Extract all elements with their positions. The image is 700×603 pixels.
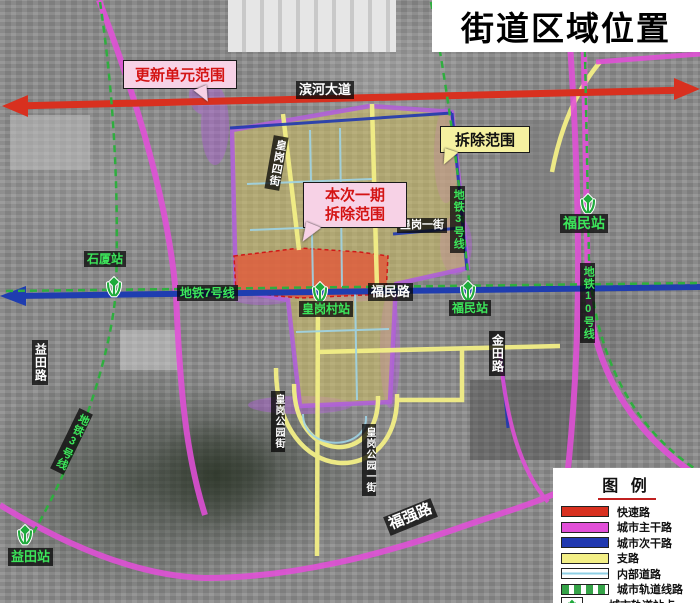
station-label-yitian: 益田站: [8, 548, 53, 566]
road-label-yitian-road: 益田路: [32, 340, 48, 385]
page-title-bar: 街道区域位置: [432, 0, 700, 52]
legend-swatch-rail-station: [561, 597, 583, 603]
station-label-huanggangcun: 皇岗村站: [299, 301, 353, 317]
callout-phase1-line1: 本次一期: [325, 186, 385, 206]
metro-label-line7: 地铁7号线: [177, 285, 238, 301]
metro-logo-icon: [577, 193, 599, 215]
station-label-fumin-northeast: 福民站: [560, 214, 608, 233]
road-label-huanggang-park-street: 皇岗公园街: [271, 391, 285, 452]
metro-logo-icon: [103, 276, 125, 298]
legend-title: 图 例: [598, 472, 656, 500]
road-label-binhe-avenue: 滨河大道: [296, 81, 354, 99]
legend-row: 城市轨道站点: [553, 597, 700, 603]
metro-logo-icon: [566, 599, 578, 603]
callout-phase1-line2: 拆除范围: [325, 205, 385, 225]
metro-label-line10: 地铁10号线: [580, 263, 595, 343]
legend-swatch-expressway: [561, 506, 609, 517]
legend-swatch-branch: [561, 553, 609, 564]
legend-row: 支路: [553, 551, 700, 567]
metro-label-line3-north: 地铁3号线: [450, 186, 465, 253]
legend-swatch-arterial: [561, 522, 609, 533]
metro-logo-icon: [309, 281, 331, 303]
legend-label: 内部道路: [617, 566, 661, 582]
legend-label: 城市轨道线路: [617, 581, 683, 597]
callout-demolition-scope: 拆除范围: [440, 126, 530, 153]
callout-demolition-text: 拆除范围: [455, 129, 515, 150]
legend-row: 城市轨道线路: [553, 582, 700, 598]
callout-update-unit-scope: 更新单元范围: [123, 60, 237, 89]
legend-swatch-rail-line: [561, 584, 609, 595]
legend-label: 快速路: [617, 504, 650, 520]
legend-row: 城市次干路: [553, 535, 700, 551]
legend-row: 内部道路: [553, 566, 700, 582]
legend-label: 城市轨道站点: [609, 597, 675, 603]
map-canvas: 滨河大道 福民路 皇岗四街 皇岗一街 金田路 益田路 皇岗公园街 皇岗公园一街 …: [0, 0, 700, 603]
legend-label: 支路: [617, 550, 639, 566]
legend-swatch-secondary: [561, 537, 609, 548]
road-label-jintian-road: 金田路: [489, 331, 505, 376]
page-title: 街道区域位置: [461, 2, 671, 50]
legend-label: 城市主干路: [617, 519, 672, 535]
legend-label: 城市次干路: [617, 535, 672, 551]
road-label-huanggang-park-1st-street: 皇岗公园一街: [362, 424, 376, 496]
legend-swatch-internal: [561, 568, 609, 579]
metro-logo-icon: [14, 524, 36, 546]
callout-update-unit-text: 更新单元范围: [135, 64, 225, 85]
legend-row: 城市主干路: [553, 520, 700, 536]
station-label-fumin-center: 福民站: [449, 300, 491, 316]
station-label-shixia: 石厦站: [84, 251, 126, 267]
legend-row: 快速路: [553, 504, 700, 520]
callout-phase1-demolition: 本次一期 拆除范围: [303, 182, 407, 228]
legend: 图 例 快速路 城市主干路 城市次干路 支路 内部道路 城市轨道线路: [553, 468, 700, 603]
metro-logo-icon: [457, 280, 479, 302]
road-label-fumin-road: 福民路: [368, 283, 413, 301]
